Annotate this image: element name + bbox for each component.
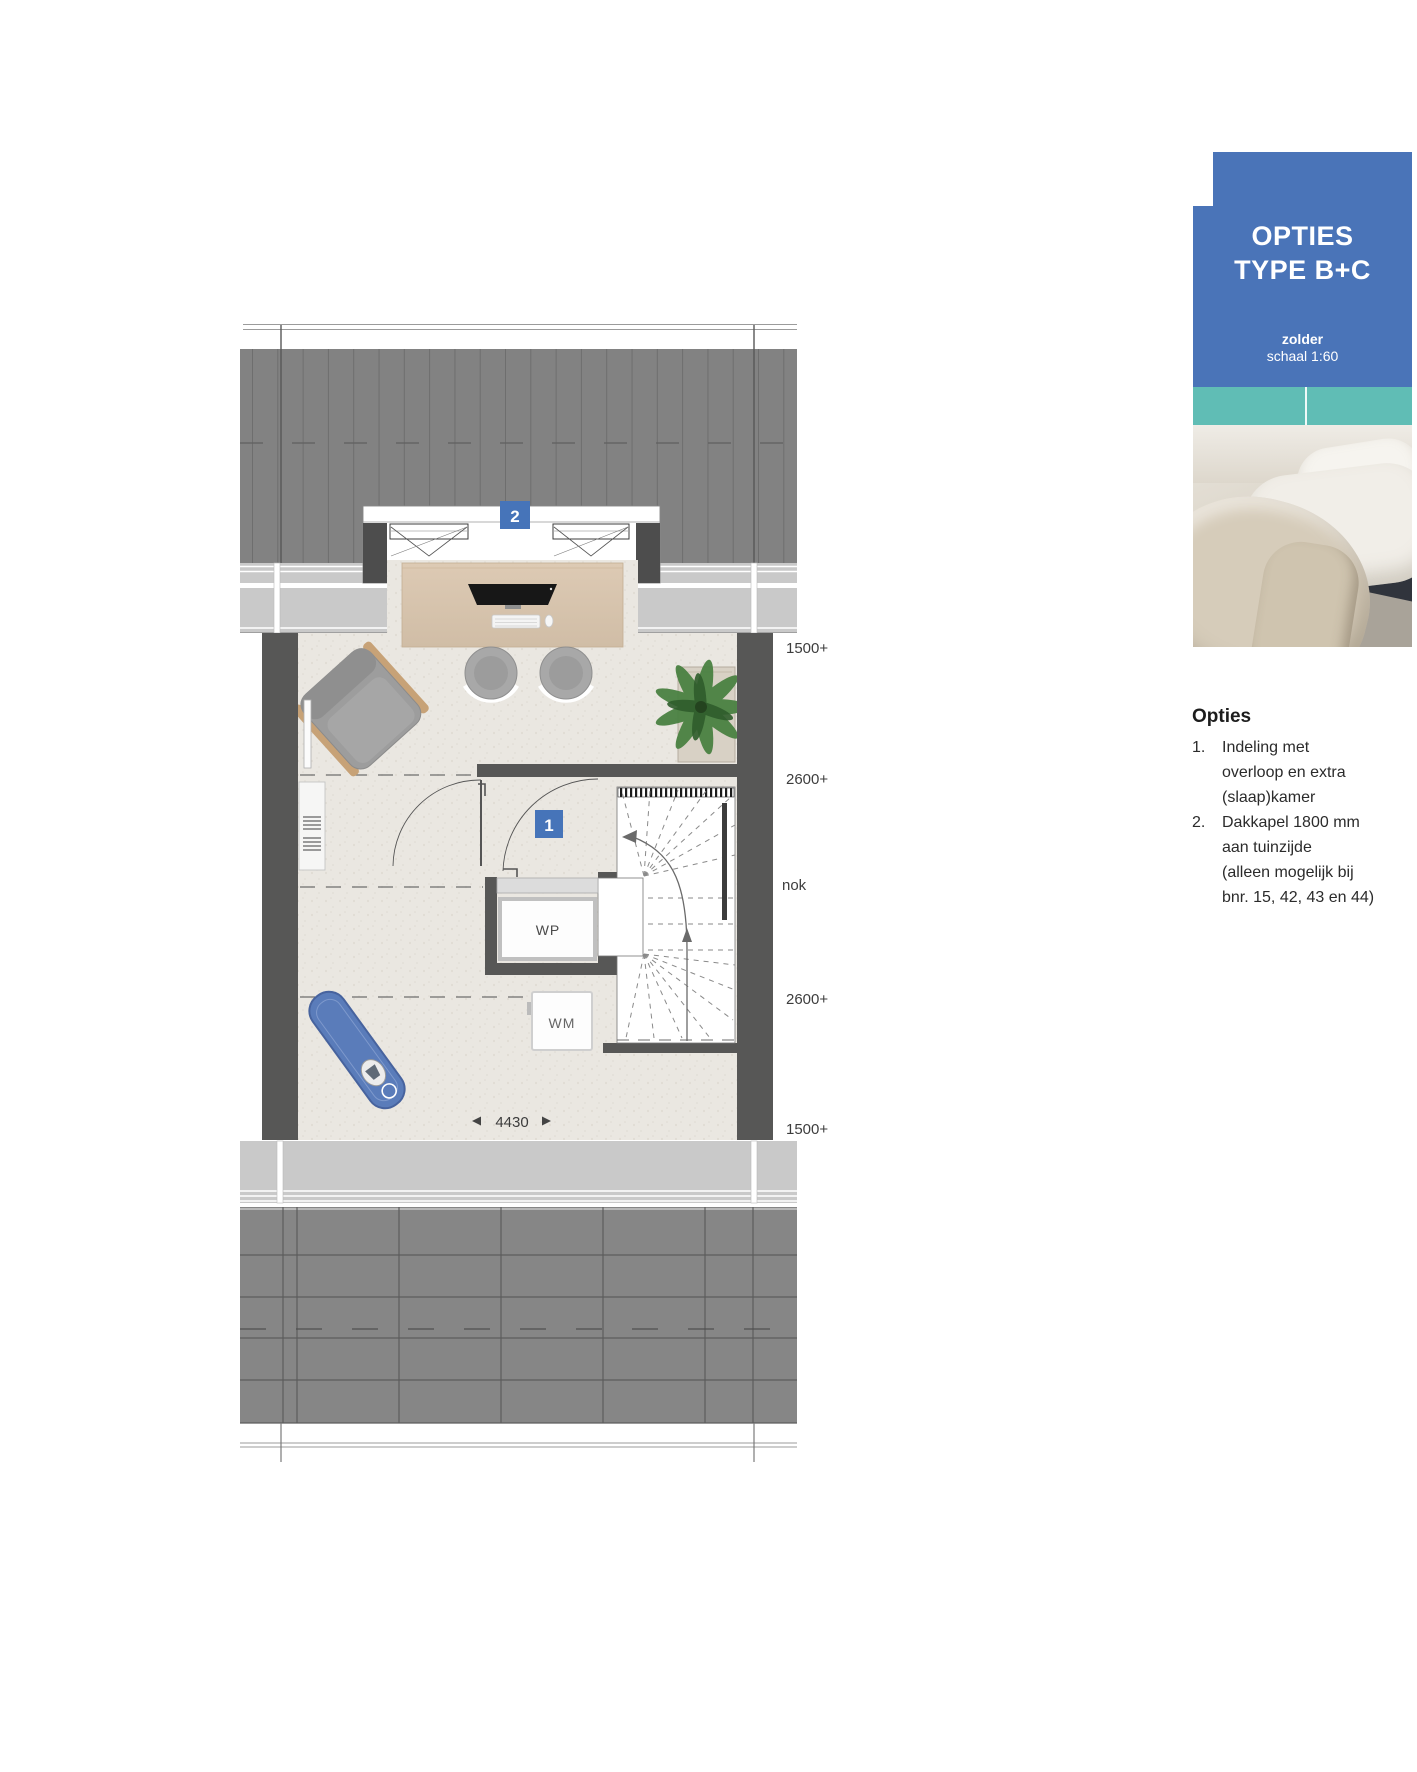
heat-pump-closet: WP bbox=[497, 878, 598, 959]
option-item-2-text: Dakkapel 1800 mm aan tuinzijde (alleen m… bbox=[1222, 810, 1374, 910]
option-1-line-1: Indeling met bbox=[1222, 735, 1346, 760]
card-header-step bbox=[1213, 152, 1412, 206]
option-item-1-text: Indeling met overloop en extra (slaap)ka… bbox=[1222, 735, 1346, 810]
teal-stripe bbox=[1193, 387, 1412, 425]
card-title-line1: OPTIES bbox=[1193, 219, 1412, 253]
card-title: OPTIES TYPE B+C bbox=[1193, 219, 1412, 287]
height-label-3: 2600+ bbox=[786, 991, 828, 1008]
height-label-2: nok bbox=[782, 877, 807, 894]
card-header: OPTIES TYPE B+C zolder schaal 1:60 bbox=[1193, 206, 1412, 387]
desk bbox=[402, 563, 623, 647]
height-label-0: 1500+ bbox=[786, 640, 828, 657]
option-badge-layout: 1 bbox=[535, 810, 563, 838]
washing-machine: WM bbox=[527, 992, 592, 1050]
option-2-line-4: bnr. 15, 42, 43 en 44) bbox=[1222, 885, 1374, 910]
height-labels: 1500+ 2600+ nok 2600+ 1500+ bbox=[782, 640, 828, 1138]
mouse bbox=[545, 615, 553, 627]
options-heading: Opties bbox=[1192, 706, 1417, 728]
svg-text:4430: 4430 bbox=[495, 1114, 528, 1131]
bottom-eaves-band bbox=[240, 1141, 797, 1207]
option-1-line-3: (slaap)kamer bbox=[1222, 785, 1346, 810]
wp-label: WP bbox=[536, 922, 561, 938]
option-item-2: 2. Dakkapel 1800 mm aan tuinzijde (allee… bbox=[1192, 810, 1417, 910]
sideboard bbox=[299, 782, 325, 870]
svg-text:1: 1 bbox=[544, 816, 553, 835]
bottom-boundary-lines bbox=[240, 1423, 797, 1462]
floor-opening-hatch bbox=[618, 788, 734, 797]
handrail bbox=[722, 803, 727, 920]
option-item-2-number: 2. bbox=[1192, 810, 1222, 910]
wm-label: WM bbox=[549, 1015, 576, 1031]
options-legend: Opties 1. Indeling met overloop en extra… bbox=[1192, 706, 1417, 910]
bottom-roof bbox=[240, 1207, 797, 1423]
height-label-4: 1500+ bbox=[786, 1121, 828, 1138]
staircase bbox=[598, 787, 735, 1043]
mirror bbox=[304, 700, 311, 768]
plan-scale: schaal 1:60 bbox=[1267, 348, 1339, 364]
option-2-line-1: Dakkapel 1800 mm bbox=[1222, 810, 1374, 835]
option-1-line-2: overloop en extra bbox=[1222, 760, 1346, 785]
card-subtitle: zolder schaal 1:60 bbox=[1193, 331, 1412, 365]
height-label-1: 2600+ bbox=[786, 771, 828, 788]
svg-text:2: 2 bbox=[510, 507, 519, 526]
option-2-line-2: aan tuinzijde bbox=[1222, 835, 1374, 860]
option-item-1: 1. Indeling met overloop en extra (slaap… bbox=[1192, 735, 1417, 810]
teal-divider bbox=[1305, 387, 1307, 425]
option-badge-dormer: 2 bbox=[500, 501, 530, 529]
bedroom-photo bbox=[1193, 425, 1412, 647]
monitor bbox=[468, 584, 557, 605]
top-boundary-lines bbox=[243, 325, 797, 330]
option-2-line-3: (alleen mogelijk bij bbox=[1222, 860, 1374, 885]
option-item-1-number: 1. bbox=[1192, 735, 1222, 810]
card-title-line2: TYPE B+C bbox=[1193, 253, 1412, 287]
plan-name: zolder bbox=[1193, 331, 1412, 348]
